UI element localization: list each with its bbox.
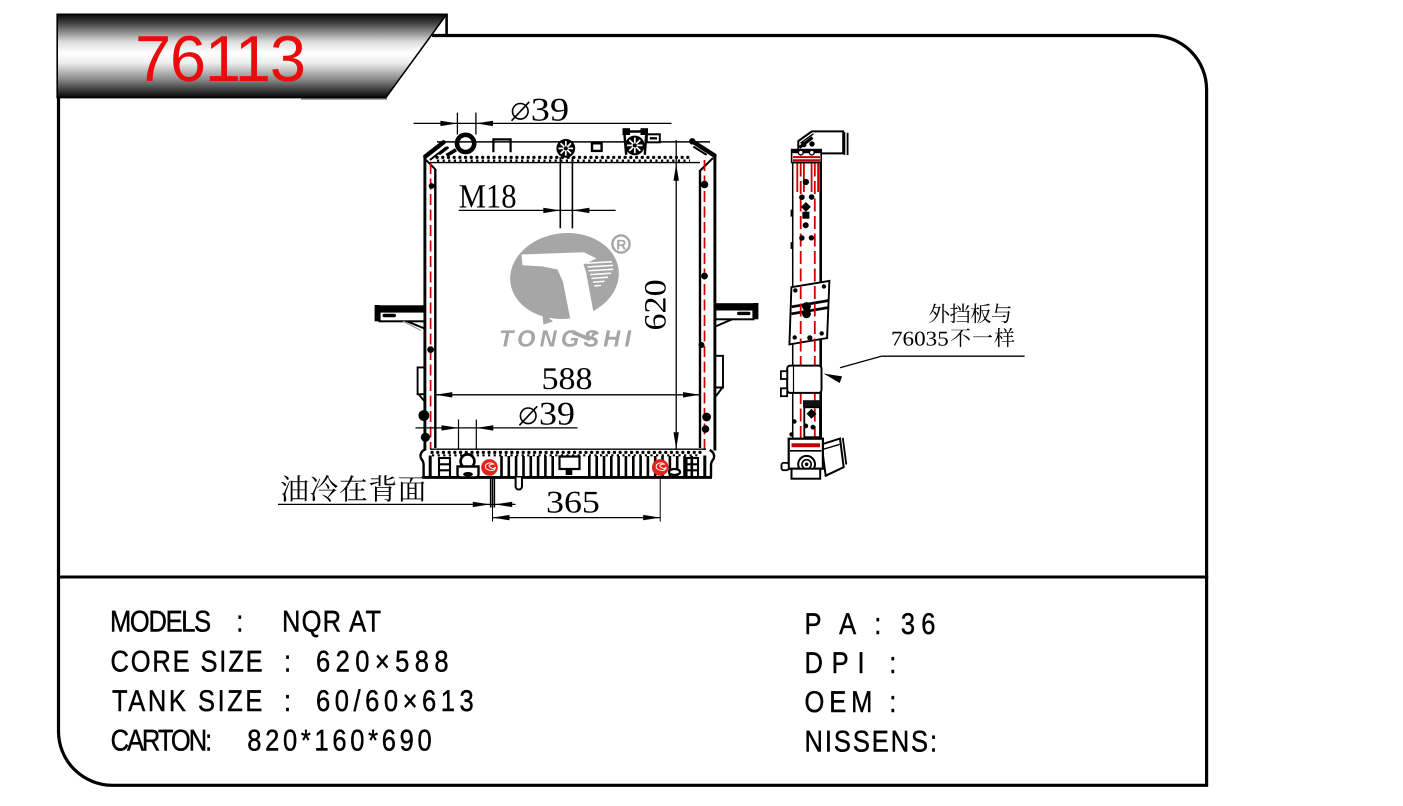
svg-text:588: 588 [542,361,593,396]
svg-text:60/60×613: 60/60×613 [316,685,474,718]
svg-text:820*160*690: 820*160*690 [247,725,431,758]
svg-text:CARTON:: CARTON: [111,725,213,758]
svg-text:CORE SIZE: CORE SIZE [111,646,263,679]
svg-text:620×588: 620×588 [316,646,449,679]
svg-text:OEM :: OEM : [805,686,897,719]
svg-text::: : [284,646,291,679]
svg-text:365: 365 [546,485,600,520]
svg-text:76035: 76035 [891,327,949,351]
svg-text::: : [236,606,243,639]
svg-text::: : [284,685,291,718]
svg-text:76113: 76113 [135,22,306,95]
svg-text:39: 39 [531,93,569,129]
svg-text:NQR AT: NQR AT [282,606,381,639]
svg-text:M18: M18 [459,179,517,216]
svg-text:MODELS: MODELS [110,606,211,639]
svg-text:R: R [616,237,626,253]
svg-text:620: 620 [638,279,673,330]
svg-text:TONGSHI: TONGSHI [499,326,633,352]
svg-text:39: 39 [539,397,575,433]
